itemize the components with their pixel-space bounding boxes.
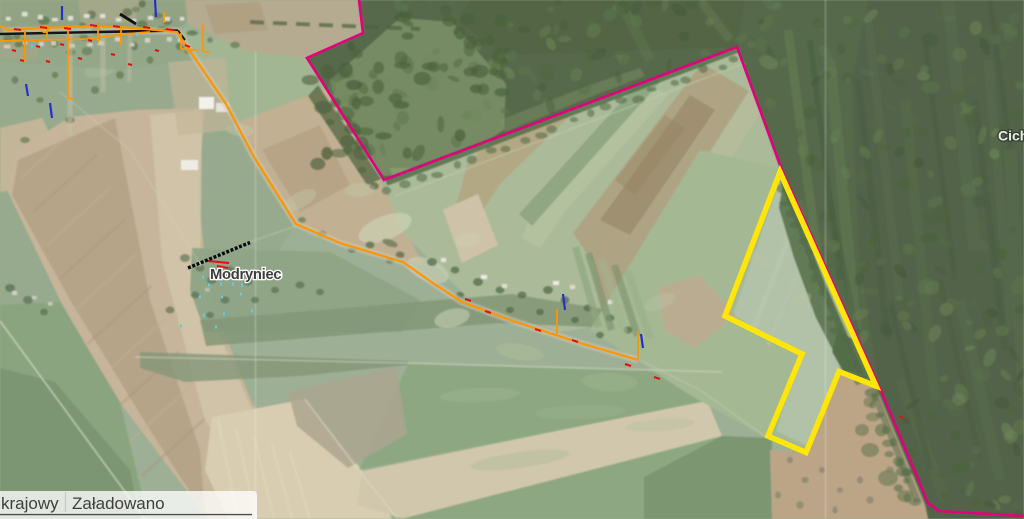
svg-text:krajowy: krajowy xyxy=(1,494,59,513)
svg-text:Załadowano: Załadowano xyxy=(72,494,165,513)
svg-text:Cichobórz: Cichobórz xyxy=(998,128,1024,144)
svg-text:Modryniec: Modryniec xyxy=(210,267,281,283)
